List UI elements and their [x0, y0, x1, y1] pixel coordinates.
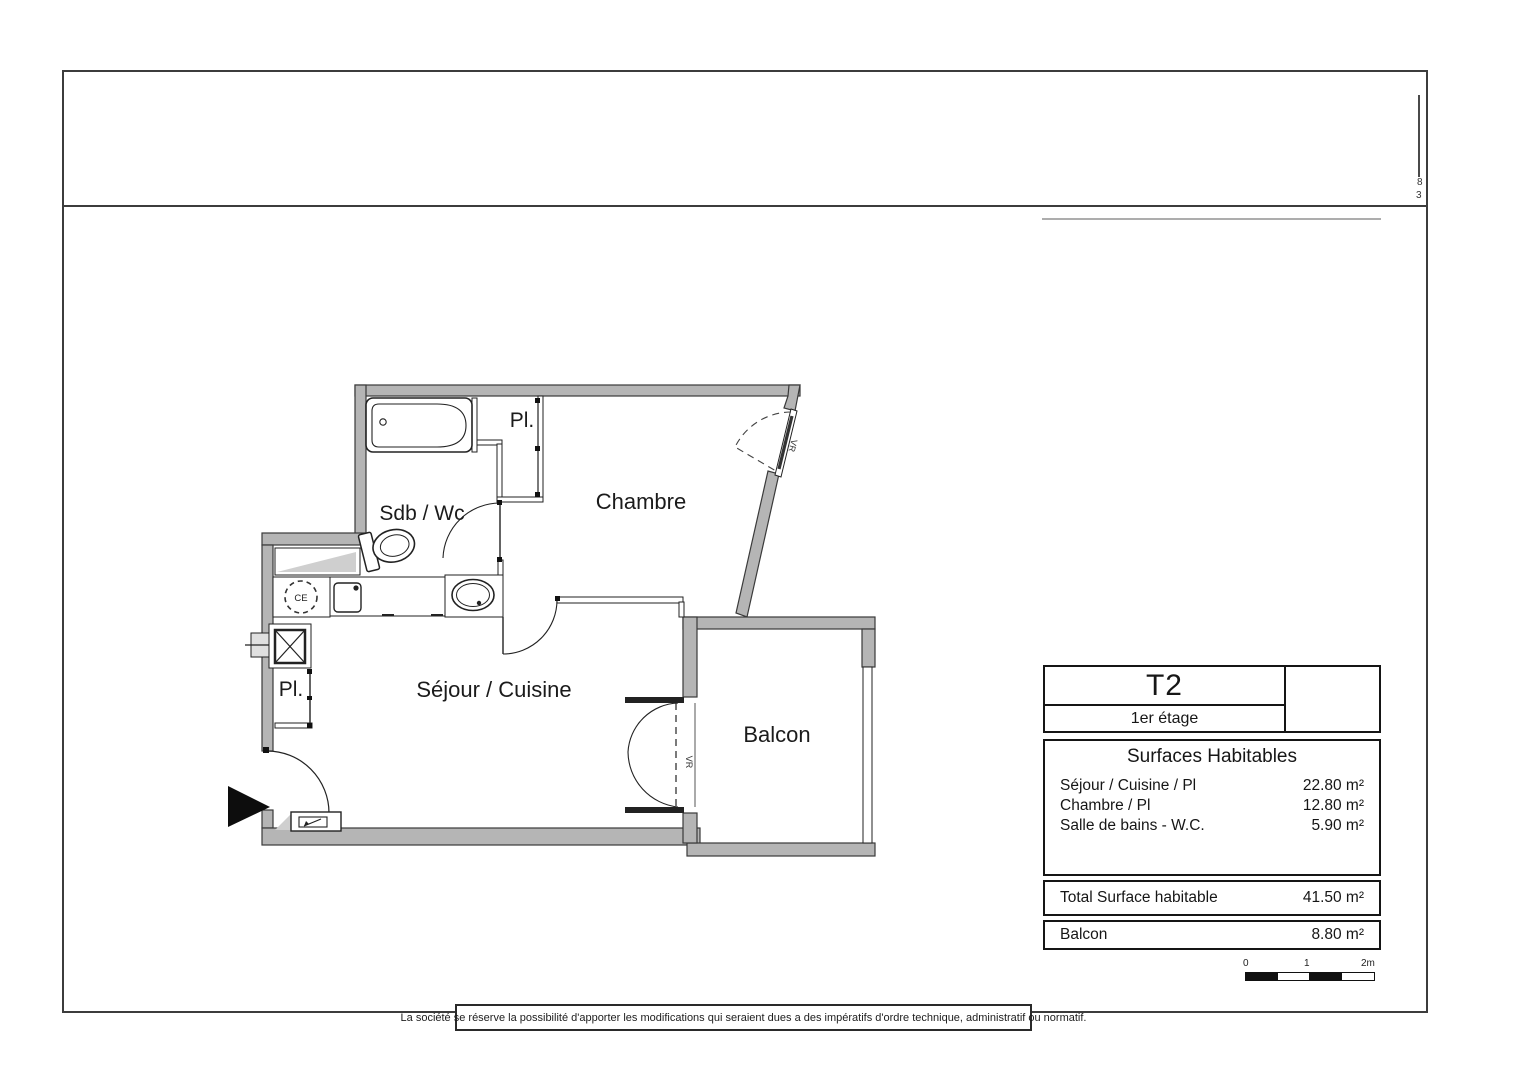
electrical-panel-icon	[291, 812, 341, 831]
balcony-french-door: VR	[625, 697, 695, 813]
bedroom-window: VR	[735, 409, 799, 477]
toilet-icon	[358, 522, 419, 572]
floor-label: 1er étage	[1045, 706, 1284, 731]
table-row-balcony: Balcon 8.80 m²	[1045, 925, 1379, 945]
room-label-pl-upper: Pl.	[510, 409, 535, 432]
surfaces-title: Surfaces Habitables	[1045, 741, 1379, 768]
closet-door-lower	[307, 669, 312, 728]
floor-plan-drawing: CE	[0, 0, 1527, 1080]
svg-text:VR: VR	[684, 756, 694, 769]
scale-bar: 0 1 2m	[1243, 958, 1383, 984]
table-row: Séjour / Cuisine / Pl 22.80 m²	[1045, 776, 1379, 796]
total-surface-box: Total Surface habitable 41.50 m²	[1043, 880, 1381, 916]
room-label-sejour: Séjour / Cuisine	[416, 677, 571, 702]
apartment-type-label: T2	[1045, 667, 1284, 706]
room-label-pl-lower: Pl.	[279, 678, 304, 701]
bathtub-icon	[366, 398, 472, 452]
type-box-empty-cell	[1286, 667, 1379, 731]
bedroom-door	[503, 596, 560, 654]
room-label-sdb: Sdb / Wc	[379, 502, 464, 525]
table-row: Chambre / Pl 12.80 m²	[1045, 796, 1379, 816]
disclaimer-box: La société se réserve la possibilité d'a…	[455, 1004, 1032, 1031]
table-row: Salle de bains - W.C. 5.90 m²	[1045, 816, 1379, 836]
entry-door	[263, 747, 329, 813]
apartment-type-box: T2 1er étage	[1043, 665, 1381, 733]
svg-text:CE: CE	[294, 593, 307, 604]
plan-sheet: 8 3	[0, 0, 1527, 1080]
room-label-balcon: Balcon	[743, 722, 810, 747]
balcony-surface-box: Balcon 8.80 m²	[1043, 920, 1381, 950]
kitchen-sink-icon	[334, 583, 361, 612]
surfaces-table: Surfaces Habitables Séjour / Cuisine / P…	[1043, 739, 1381, 876]
disclaimer-text: La société se réserve la possibilité d'a…	[401, 1012, 1087, 1024]
shaft-icon	[245, 630, 305, 663]
room-label-chambre: Chambre	[596, 489, 686, 514]
table-row-total: Total Surface habitable 41.50 m²	[1045, 888, 1379, 908]
